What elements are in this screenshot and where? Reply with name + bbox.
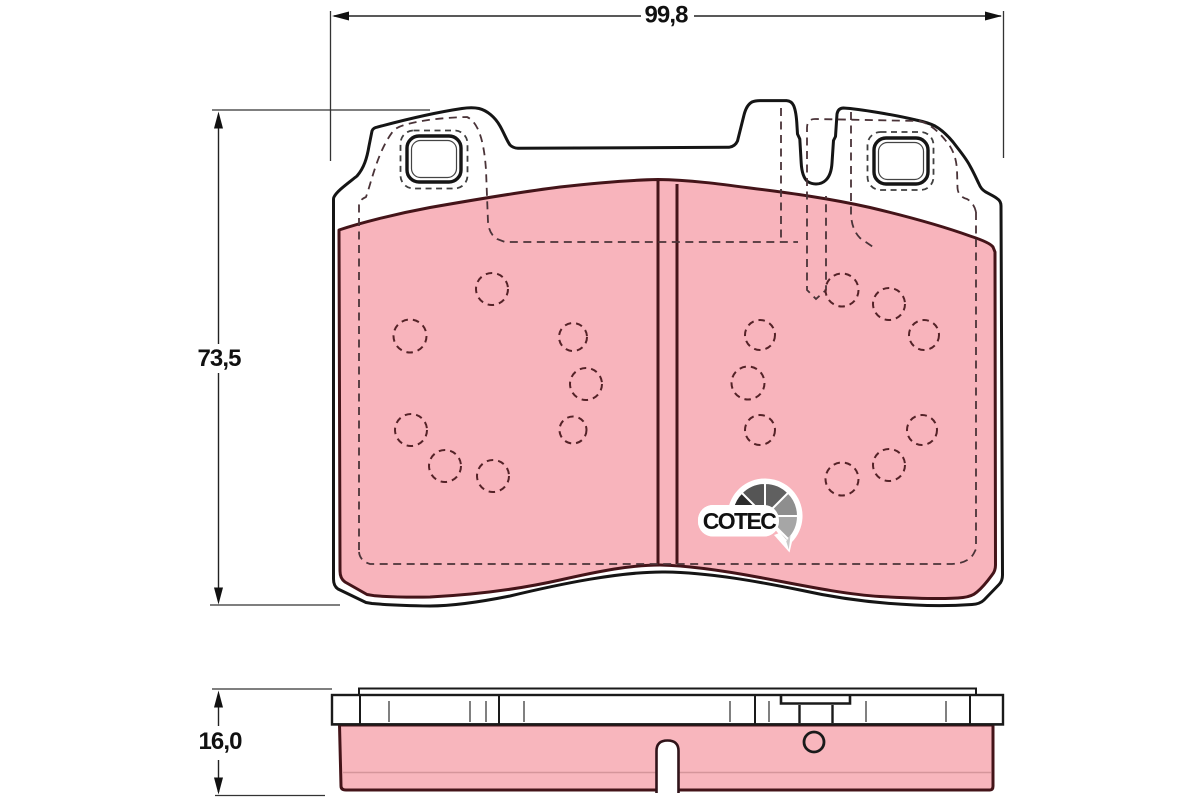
svg-text:COTEC: COTEC — [703, 508, 776, 534]
svg-text:16,0: 16,0 — [198, 728, 242, 755]
svg-text:73,5: 73,5 — [197, 345, 241, 372]
svg-text:99,8: 99,8 — [644, 2, 688, 29]
